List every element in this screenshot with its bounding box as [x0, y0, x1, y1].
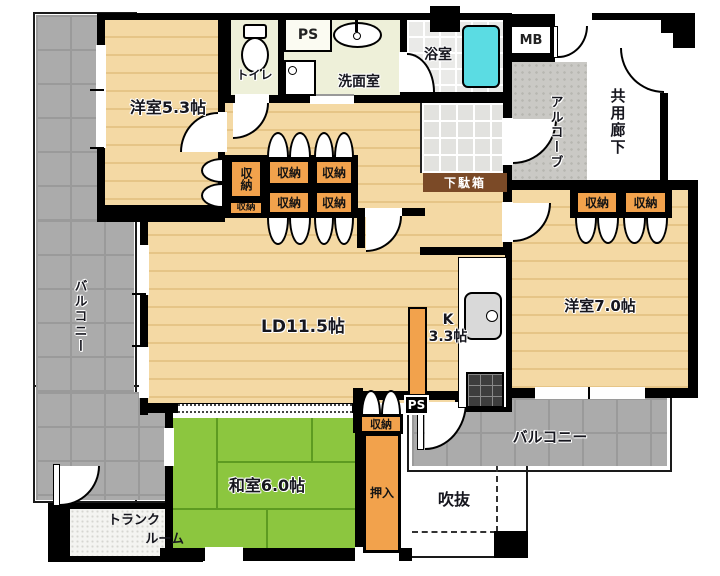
storage-label: 収納 — [322, 167, 346, 179]
wall — [660, 93, 668, 187]
label-senmen: 洗面室 — [324, 72, 394, 90]
mb-box: MB — [510, 25, 552, 55]
tatami-line — [173, 508, 357, 510]
storage-box-washitsu: 収納 — [359, 414, 403, 434]
washing-machine — [284, 60, 316, 96]
bifold-door — [623, 218, 668, 244]
sink-faucet — [355, 20, 358, 32]
genkan-tile — [420, 103, 507, 173]
storage-box: 収納 — [314, 159, 354, 186]
storage-label: 収納 — [237, 204, 256, 212]
label-kitchen: K 3.3帖 — [423, 309, 473, 349]
fukinuke-line-bottom — [412, 556, 496, 558]
door-petal — [201, 183, 222, 208]
storage-box: 収納 — [575, 190, 619, 215]
front-doorway — [502, 118, 513, 165]
window — [164, 428, 174, 466]
storage-box: 収納 — [314, 190, 354, 215]
tatami-line — [216, 461, 357, 463]
label-kitchen-line2: 3.3帖 — [429, 329, 468, 346]
label-alcove: アルコーブ — [545, 80, 565, 184]
door-petal — [314, 132, 334, 157]
door-petal — [289, 218, 311, 245]
door-petal — [597, 218, 619, 244]
bifold-door — [314, 132, 354, 157]
bifold-door — [575, 218, 619, 244]
door-petal — [381, 390, 401, 414]
storage-label: 収納 — [322, 197, 346, 209]
door-petal — [201, 158, 222, 183]
window-tick — [90, 89, 104, 91]
fukinuke-dashed-h — [412, 531, 496, 533]
pillar-topright2 — [673, 33, 695, 48]
sink-drain — [353, 32, 361, 40]
window-tick — [588, 387, 590, 399]
label-yoshitsu70: 洋室7.0帖 — [548, 295, 652, 315]
label-yoshitsu53: 洋室5.3帖 — [113, 96, 223, 116]
window-tick — [90, 147, 104, 149]
label-washitsu: 和室6.0帖 — [217, 474, 317, 494]
mb-label: MB — [520, 33, 543, 48]
ps-label: PS — [408, 398, 425, 412]
wall — [688, 190, 698, 398]
doorway — [310, 94, 354, 104]
door-petal — [575, 218, 597, 244]
storage-label: 収納 — [633, 197, 657, 209]
door-petal — [334, 218, 354, 245]
storage-label: 収納 — [277, 197, 301, 209]
label-toilet: トイレ — [231, 66, 278, 82]
storage-box: 収納 — [267, 190, 311, 215]
door-petal — [267, 218, 289, 245]
label-balcony-left: バルコニー — [68, 268, 90, 364]
kitchen-faucet — [486, 310, 498, 322]
tatami-line — [216, 418, 218, 510]
getabako-label: 下駄箱 — [444, 174, 486, 191]
getabako: 下駄箱 — [423, 173, 507, 192]
window-tick — [132, 293, 146, 295]
label-kitchen-line1: K — [443, 312, 454, 329]
pillar-bottom — [494, 531, 528, 558]
storage-label: 収納 — [370, 419, 392, 430]
window — [139, 347, 149, 398]
wall — [592, 13, 668, 20]
bifold-door — [267, 218, 311, 245]
window — [535, 387, 645, 399]
wall — [357, 216, 365, 248]
door-petal — [623, 218, 646, 244]
door-petal — [646, 218, 669, 244]
door-leaf — [53, 464, 60, 506]
balcony-left-upper — [36, 15, 98, 220]
wall — [400, 13, 512, 20]
bifold-door — [201, 158, 222, 208]
door-petal — [289, 132, 311, 157]
oshiire-label: 押入 — [370, 487, 394, 499]
label-ld: LD11.5帖 — [238, 313, 368, 335]
tatami-line — [266, 510, 268, 553]
floor-plan: 収納 収納 収納 収納 収納 収納 収納 収納 収納 — [0, 0, 720, 576]
storage-box: 収納 — [229, 159, 263, 199]
oshiire: 押入 — [363, 433, 401, 553]
label-trunk-line2: ルーム — [74, 531, 194, 550]
ps-box-bottom: PS — [404, 395, 429, 415]
wall — [225, 13, 231, 103]
washing-machine-knob — [288, 66, 297, 75]
pillar-topright — [661, 13, 695, 33]
door-petal — [361, 390, 381, 414]
label-trunk: トランク ルーム — [74, 512, 194, 554]
storage-label: 収納 — [277, 167, 301, 179]
kitchen-stove — [466, 372, 504, 408]
window-tick — [132, 345, 146, 347]
door-petal — [314, 218, 334, 245]
wall — [420, 247, 512, 255]
storage-box: 収納 — [267, 159, 311, 186]
window — [205, 547, 243, 562]
storage-box-small: 収納 — [229, 201, 263, 215]
storage-box: 収納 — [623, 190, 668, 215]
bifold-door — [267, 132, 311, 157]
tatami-line — [311, 418, 313, 463]
label-bath: 浴室 — [416, 45, 460, 63]
bifold-door — [361, 390, 401, 414]
door-petal — [267, 132, 289, 157]
window — [96, 45, 106, 148]
label-trunk-line1: トランク — [74, 512, 194, 531]
bathtub — [462, 25, 500, 88]
wall — [400, 92, 512, 103]
storage-label: 収納 — [585, 197, 609, 209]
ps-label: PS — [298, 27, 318, 43]
label-fukinuke: 吹抜 — [428, 488, 480, 508]
door-petal — [334, 132, 354, 157]
label-balcony-bottom: バルコニー — [500, 427, 600, 445]
label-corridor: 共用廊下 — [606, 66, 630, 178]
doorway — [502, 202, 513, 242]
shoji-partition — [178, 404, 352, 413]
ps-box-top: PS — [284, 18, 332, 52]
storage-label: 収納 — [240, 167, 252, 191]
fukinuke-dashed-v — [496, 466, 498, 532]
window — [139, 245, 149, 295]
bifold-door — [314, 218, 354, 245]
